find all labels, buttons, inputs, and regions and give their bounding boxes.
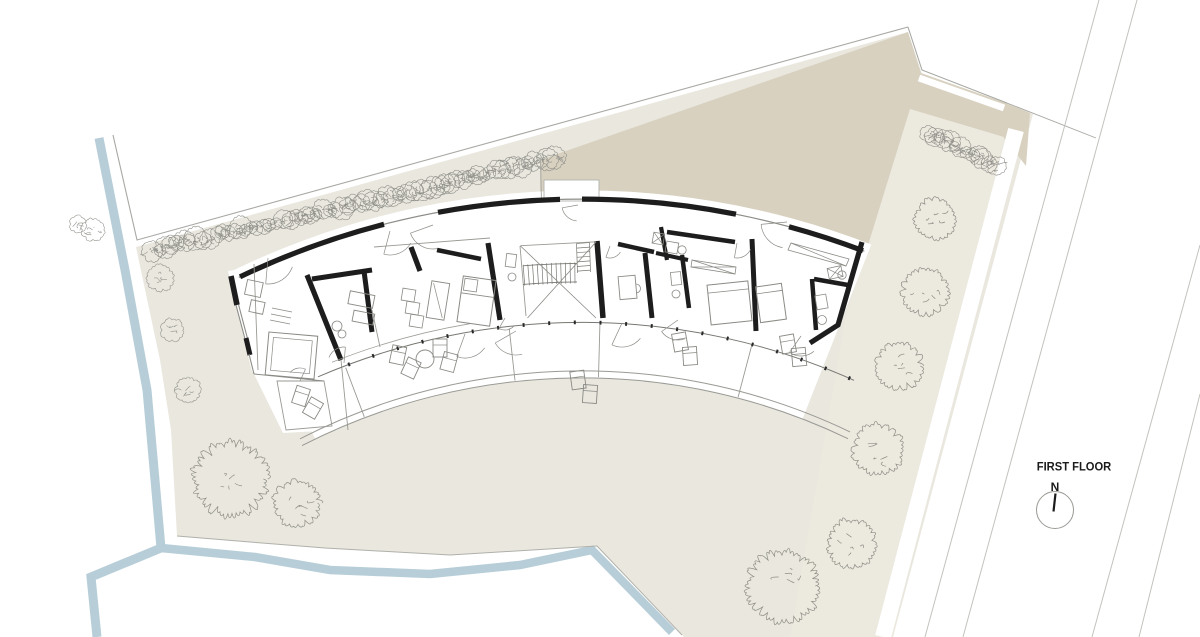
- svg-text:FIRST FLOOR: FIRST FLOOR: [1037, 460, 1112, 474]
